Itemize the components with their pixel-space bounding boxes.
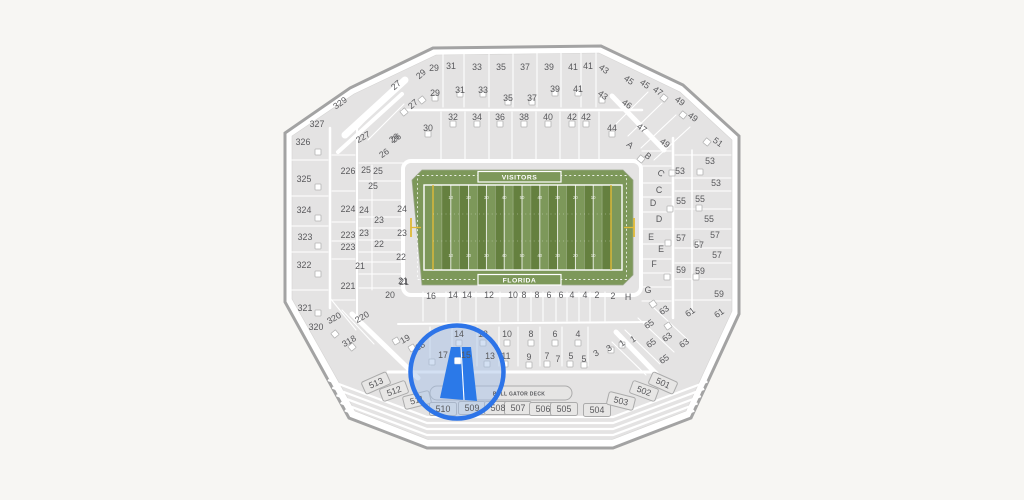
tunnel-icon xyxy=(696,205,702,211)
section-label[interactable]: 5 xyxy=(569,351,574,361)
yard-number: 40 xyxy=(502,253,507,258)
section-label[interactable]: 325 xyxy=(297,174,312,184)
section-label[interactable]: 223 xyxy=(341,230,356,240)
section-label[interactable]: 41 xyxy=(568,62,578,72)
section-label[interactable]: 506 xyxy=(536,404,551,414)
section-label[interactable]: 6 xyxy=(553,329,558,339)
section-label[interactable]: 321 xyxy=(298,303,313,313)
section-label[interactable]: 20 xyxy=(385,290,395,300)
section-label[interactable]: 53 xyxy=(711,178,721,188)
section-label[interactable]: 4 xyxy=(570,290,575,300)
tunnel-icon xyxy=(504,340,510,346)
section-label[interactable]: 24 xyxy=(359,205,369,215)
section-label[interactable]: 59 xyxy=(714,289,724,299)
section-label[interactable]: 21 xyxy=(355,261,365,271)
football-field: 101020203030404050504040303020201010VISI… xyxy=(411,170,634,285)
section-label[interactable]: 507 xyxy=(511,403,526,413)
section-label[interactable]: 36 xyxy=(495,112,505,122)
yard-number: 20 xyxy=(466,195,471,200)
section-label[interactable]: 37 xyxy=(520,62,530,72)
seating-map-canvas[interactable]: 101020203030404050504040303020201010VISI… xyxy=(0,0,1024,500)
section-label[interactable]: 14 xyxy=(454,329,464,339)
tunnel-icon xyxy=(526,362,532,368)
tunnel-icon xyxy=(315,215,321,221)
section-label[interactable]: 31 xyxy=(446,61,456,71)
section-label[interactable]: 6 xyxy=(547,290,552,300)
section-label[interactable]: 6 xyxy=(559,290,564,300)
tunnel-icon xyxy=(665,240,671,246)
yard-number: 20 xyxy=(573,195,578,200)
section-label[interactable]: 35 xyxy=(503,93,513,103)
section-label[interactable]: 14 xyxy=(448,290,458,300)
section-label[interactable]: 31 xyxy=(455,85,465,95)
stadium-seating-map[interactable]: 101020203030404050504040303020201010VISI… xyxy=(0,0,1024,500)
tunnel-icon xyxy=(315,243,321,249)
section-label[interactable]: 25 xyxy=(361,165,371,175)
section-label[interactable]: 504 xyxy=(590,405,605,415)
section-label[interactable]: 23 xyxy=(397,228,407,238)
section-label[interactable]: 8 xyxy=(535,290,540,300)
tunnel-icon xyxy=(544,361,550,367)
tunnel-icon xyxy=(528,340,534,346)
yard-number: 10 xyxy=(591,195,596,200)
yard-number: 40 xyxy=(502,195,507,200)
section-label[interactable]: 23 xyxy=(359,228,369,238)
yard-number: 20 xyxy=(466,253,471,258)
section-label[interactable]: 53 xyxy=(675,166,685,176)
section-label[interactable]: 59 xyxy=(695,266,705,276)
section-label[interactable]: 224 xyxy=(341,204,356,214)
section-label[interactable]: 55 xyxy=(695,194,705,204)
section-label[interactable]: 22 xyxy=(374,239,384,249)
section-label[interactable]: 33 xyxy=(472,62,482,72)
tunnel-icon xyxy=(575,340,581,346)
section-label[interactable]: H xyxy=(625,292,631,302)
selected-section-marker xyxy=(455,358,462,365)
yard-number: 10 xyxy=(448,253,453,258)
section-label[interactable]: 41 xyxy=(573,84,583,94)
section-label[interactable]: G xyxy=(645,285,652,295)
section-label[interactable]: 53 xyxy=(705,156,715,166)
section-label[interactable]: 35 xyxy=(496,62,506,72)
section-label[interactable]: 57 xyxy=(694,240,704,250)
section-label[interactable]: 57 xyxy=(710,230,720,240)
tunnel-icon xyxy=(315,149,321,155)
section-label[interactable]: 44 xyxy=(607,123,617,133)
section-label[interactable]: 17 xyxy=(438,350,448,360)
section-label[interactable]: 39 xyxy=(550,84,560,94)
section-label[interactable]: 15 xyxy=(461,350,471,360)
tunnel-icon xyxy=(567,361,573,367)
tunnel-icon xyxy=(315,271,321,277)
tunnel-icon xyxy=(315,184,321,190)
tunnel-icon xyxy=(664,274,670,280)
visitors-label: VISITORS xyxy=(502,175,538,182)
section-label[interactable]: 39 xyxy=(544,62,554,72)
section-label[interactable]: 8 xyxy=(522,290,527,300)
section-label[interactable]: 55 xyxy=(704,214,714,224)
section-label[interactable]: 226 xyxy=(341,166,356,176)
section-label[interactable]: 30 xyxy=(423,123,433,133)
section-label[interactable]: 4 xyxy=(583,290,588,300)
section-label[interactable]: 21 xyxy=(399,277,409,287)
section-label[interactable]: 8 xyxy=(529,329,534,339)
section-label[interactable]: 23 xyxy=(374,215,384,225)
section-label[interactable]: 12 xyxy=(484,290,494,300)
section-label[interactable]: 29 xyxy=(429,63,439,73)
section-label[interactable]: 33 xyxy=(478,85,488,95)
yard-number: 40 xyxy=(537,195,542,200)
section-label[interactable]: 41 xyxy=(583,61,593,71)
section-label[interactable]: 16 xyxy=(426,291,436,301)
section-label[interactable]: 320 xyxy=(309,322,324,332)
section-label[interactable]: 24 xyxy=(397,204,407,214)
section-label[interactable]: 29 xyxy=(430,88,440,98)
section-label[interactable]: 38 xyxy=(519,112,529,122)
yard-number: 40 xyxy=(537,253,542,258)
section-label[interactable]: C xyxy=(656,185,663,195)
section-label[interactable]: 13 xyxy=(485,351,495,361)
tunnel-icon xyxy=(697,169,703,175)
section-label[interactable]: 322 xyxy=(297,260,312,270)
tunnel-icon xyxy=(552,340,558,346)
tunnel-icon xyxy=(667,206,673,212)
section-label[interactable]: E xyxy=(648,232,654,242)
section-label[interactable]: E xyxy=(658,244,664,254)
section-label[interactable]: 25 xyxy=(373,166,383,176)
section-label[interactable]: 57 xyxy=(676,233,686,243)
section-label[interactable]: 2 xyxy=(595,290,600,300)
section-label[interactable]: 4 xyxy=(576,329,581,339)
yard-number: 10 xyxy=(591,253,596,258)
section-label[interactable]: 223 xyxy=(341,242,356,252)
section-label[interactable]: 32 xyxy=(448,112,458,122)
section-label[interactable]: D xyxy=(656,214,662,224)
section-label[interactable]: 5 xyxy=(582,354,587,364)
section-label[interactable]: 324 xyxy=(297,205,312,215)
section-label[interactable]: D xyxy=(650,198,656,208)
home-team-label: FLORIDA xyxy=(503,278,537,285)
section-label[interactable]: 59 xyxy=(676,265,686,275)
section-label[interactable]: 221 xyxy=(341,281,356,291)
section-label[interactable]: 9 xyxy=(527,352,532,362)
section-label[interactable]: 327 xyxy=(310,119,325,129)
yard-number: 50 xyxy=(520,195,525,200)
section-label[interactable]: 323 xyxy=(298,232,313,242)
section-label[interactable]: 55 xyxy=(676,196,686,206)
section-label[interactable]: 7 xyxy=(545,351,550,361)
section-label[interactable]: 10 xyxy=(502,329,512,339)
section-label[interactable]: 57 xyxy=(712,250,722,260)
section-label[interactable]: 40 xyxy=(543,112,553,122)
yard-number: 50 xyxy=(520,253,525,258)
section-label[interactable]: 7 xyxy=(556,354,561,364)
section-label[interactable]: 14 xyxy=(462,290,472,300)
section-label[interactable]: 10 xyxy=(508,290,518,300)
section-label[interactable]: 42 xyxy=(567,112,577,122)
yard-number: 10 xyxy=(448,195,453,200)
yard-number: 30 xyxy=(555,195,560,200)
tunnel-icon xyxy=(669,170,675,176)
section-label[interactable]: 505 xyxy=(557,404,572,414)
section-label[interactable]: 2 xyxy=(611,291,616,301)
section-label[interactable]: 326 xyxy=(296,137,311,147)
section-label[interactable]: 25 xyxy=(368,181,378,191)
yard-number: 30 xyxy=(484,195,489,200)
section-label[interactable]: 37 xyxy=(527,93,537,103)
section-label[interactable]: 34 xyxy=(472,112,482,122)
yard-number: 30 xyxy=(484,253,489,258)
section-label[interactable]: F xyxy=(651,259,657,269)
section-label[interactable]: 42 xyxy=(581,112,591,122)
yard-number: 30 xyxy=(555,253,560,258)
section-label[interactable]: 22 xyxy=(396,252,406,262)
tunnel-icon xyxy=(315,310,321,316)
yard-number: 20 xyxy=(573,253,578,258)
